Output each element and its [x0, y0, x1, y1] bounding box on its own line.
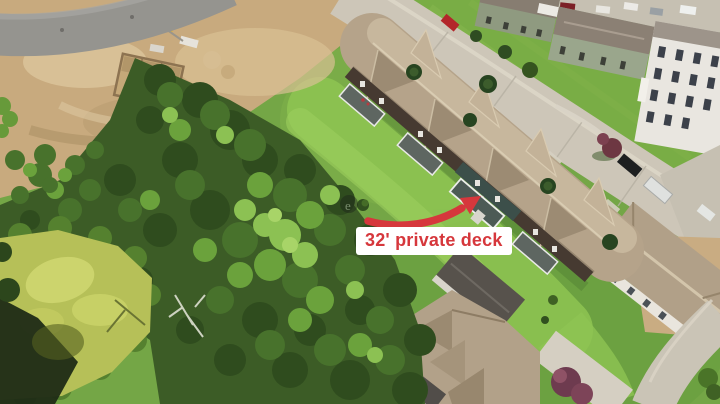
aerial-scene: e [0, 0, 720, 404]
watermark: e [340, 195, 358, 213]
watermark-letter: e [345, 198, 351, 213]
deck-annotation-label: 32' private deck [356, 227, 512, 255]
aerial-photo: e 32' private deck [0, 0, 720, 404]
